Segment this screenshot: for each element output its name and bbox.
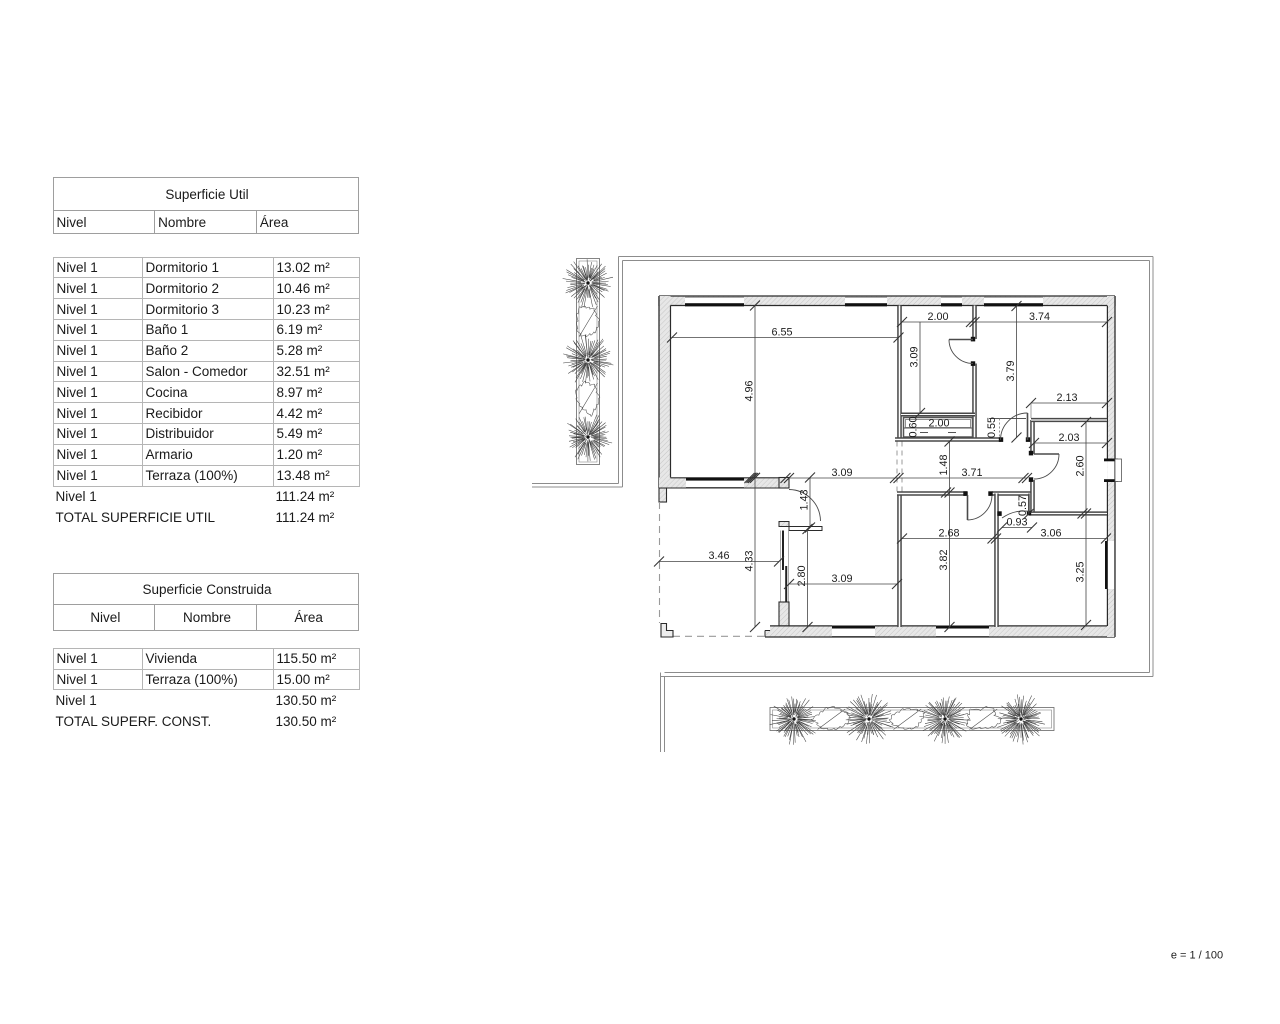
svg-text:3.71: 3.71 — [961, 467, 982, 479]
svg-text:1.43: 1.43 — [799, 489, 811, 510]
svg-text:2.03: 2.03 — [1058, 432, 1079, 444]
svg-text:2.60: 2.60 — [1074, 455, 1086, 476]
svg-text:3.82: 3.82 — [938, 549, 950, 570]
svg-text:6.55: 6.55 — [771, 327, 792, 339]
svg-text:2.68: 2.68 — [938, 528, 959, 540]
svg-text:3.09: 3.09 — [831, 573, 852, 585]
svg-text:3.74: 3.74 — [1029, 311, 1050, 323]
svg-text:2.00: 2.00 — [927, 311, 948, 323]
svg-text:3.06: 3.06 — [1040, 528, 1061, 540]
svg-text:3.79: 3.79 — [1005, 360, 1017, 381]
svg-text:e = 1 / 100: e = 1 / 100 — [1171, 950, 1223, 962]
svg-text:3.46: 3.46 — [708, 550, 729, 562]
svg-text:4.33: 4.33 — [743, 550, 755, 571]
svg-text:3.09: 3.09 — [908, 346, 920, 367]
svg-text:3.09: 3.09 — [831, 467, 852, 479]
svg-text:4.96: 4.96 — [743, 380, 755, 401]
svg-text:1.48: 1.48 — [938, 454, 950, 475]
svg-text:0.55: 0.55 — [986, 417, 998, 438]
svg-text:0.57: 0.57 — [1017, 495, 1029, 516]
svg-text:3.25: 3.25 — [1074, 561, 1086, 582]
svg-text:2.13: 2.13 — [1056, 392, 1077, 404]
svg-text:2.80: 2.80 — [796, 565, 808, 586]
svg-text:0.60: 0.60 — [908, 416, 920, 437]
svg-text:2.00: 2.00 — [928, 418, 949, 430]
